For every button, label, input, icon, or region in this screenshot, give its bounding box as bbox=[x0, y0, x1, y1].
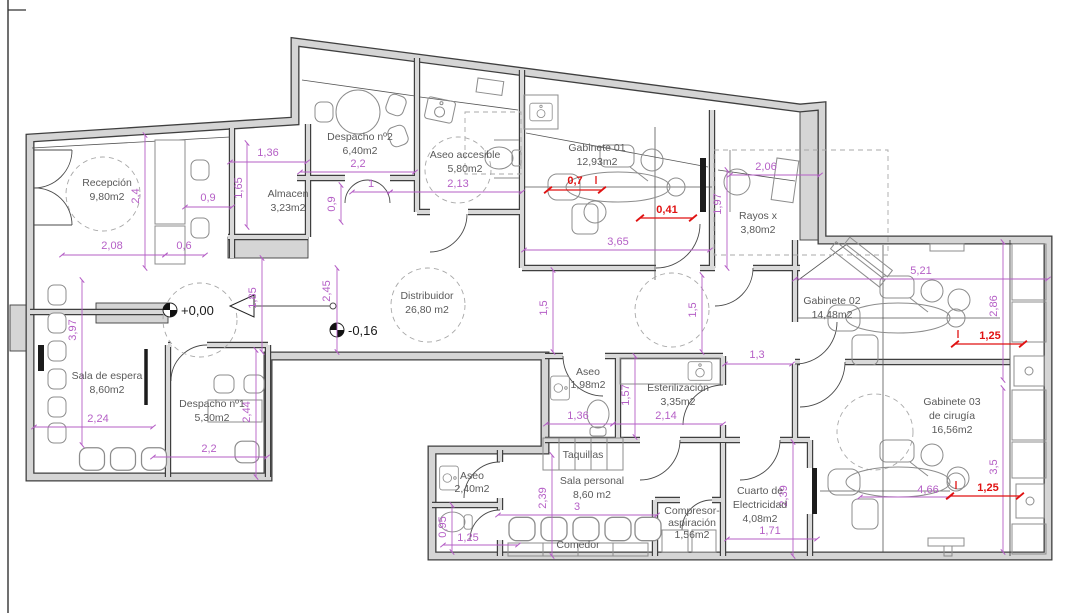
room-label-gabinete02: Gabinete 02 bbox=[803, 295, 860, 307]
dim-label: 2,86 bbox=[988, 295, 1000, 316]
reception-desk bbox=[155, 140, 185, 224]
dim-label: 0,6 bbox=[176, 240, 191, 252]
room-label-esterilizacion: Esterilización bbox=[647, 382, 709, 394]
level-label: -0,16 bbox=[348, 323, 378, 338]
dim-label: 1,25 bbox=[457, 532, 478, 544]
dim-label: 1,71 bbox=[759, 525, 780, 537]
room-label-almacen: Almacen bbox=[268, 188, 309, 200]
floor-plan-sheet: +0,00 -0,16 bbox=[0, 0, 1084, 613]
dim-label: 1,85 bbox=[247, 287, 259, 308]
room-label-gabinete03: Gabinete 03 bbox=[923, 396, 980, 408]
room-label-electricidad: Cuarto de bbox=[737, 485, 783, 497]
room-label-despacho1: Despacho nº1 bbox=[179, 398, 245, 410]
room-area: 8,60 m2 bbox=[573, 489, 611, 501]
room-label-compresor-line2: aspiración bbox=[668, 517, 716, 529]
room-label-comedor: Comedor bbox=[556, 539, 600, 551]
room-area: 8,60m2 bbox=[89, 384, 124, 396]
room-area: 4,08m2 bbox=[742, 513, 777, 525]
round-table bbox=[336, 90, 380, 134]
dim-label: 1,5 bbox=[687, 302, 699, 317]
dim-label: 1,36 bbox=[257, 147, 278, 159]
room-area: 5,30m2 bbox=[194, 412, 229, 424]
room-area: 16,56m2 bbox=[932, 424, 973, 436]
walls bbox=[30, 42, 1048, 556]
room-area: 1,98m2 bbox=[570, 379, 605, 391]
room-area: 26,80 m2 bbox=[405, 304, 449, 316]
dim-label: 0,9 bbox=[326, 196, 338, 211]
floor-plan-drawing: +0,00 -0,16 bbox=[0, 0, 1084, 613]
room-area: 14,48m2 bbox=[812, 309, 853, 321]
dim-label: 2,2 bbox=[201, 443, 216, 455]
chair bbox=[235, 441, 259, 463]
room-area: 5,80m2 bbox=[447, 163, 482, 175]
dim-label: 1,5 bbox=[538, 300, 550, 315]
room-label-sala-espera: Sala de espera bbox=[72, 370, 143, 382]
room-label-sala-personal: Sala personal bbox=[560, 475, 624, 487]
chair bbox=[191, 160, 209, 180]
dim-label: 3,97 bbox=[67, 319, 79, 340]
dim-label: 4,66 bbox=[917, 484, 938, 496]
room-label-compresor: Compresor- bbox=[664, 505, 720, 517]
room-area: 3,23m2 bbox=[270, 202, 305, 214]
dim-label: 2,06 bbox=[755, 161, 776, 173]
dim-label: 1,3 bbox=[749, 349, 764, 361]
dim-label: 2,08 bbox=[101, 240, 122, 252]
dim-label-critical: 0,7 bbox=[567, 175, 582, 187]
cabinet bbox=[524, 95, 558, 129]
dim-label: 3,5 bbox=[988, 459, 1000, 474]
dim-label: 2,45 bbox=[321, 280, 333, 301]
dim-label-critical: 1,25 bbox=[979, 330, 1000, 342]
dim-label: 2,24 bbox=[87, 413, 108, 425]
room-label-aseo-staff: Aseo bbox=[460, 470, 484, 482]
room-label-taquillas: Taquillas bbox=[563, 449, 604, 461]
dim-label: 2,2 bbox=[350, 158, 365, 170]
sliding-door bbox=[812, 468, 817, 514]
room-label-aseo-accesible: Aseo accesible bbox=[430, 149, 501, 161]
dental-chair bbox=[828, 440, 965, 529]
room-label-distribuidor: Distribuidor bbox=[400, 290, 454, 302]
dim-label: 1,97 bbox=[712, 193, 724, 214]
room-area: 3,80m2 bbox=[740, 224, 775, 236]
room-label-gabinete03-line2: de cirugía bbox=[929, 410, 975, 422]
cabinets bbox=[1012, 244, 1046, 554]
room-area: 2,40m2 bbox=[454, 483, 489, 495]
room-area: 12,93m2 bbox=[577, 156, 618, 168]
room-area: 1,56m2 bbox=[674, 529, 709, 541]
chair bbox=[315, 102, 333, 122]
room-label-recepcion: Recepción bbox=[82, 177, 132, 189]
dim-label: 1,57 bbox=[620, 384, 632, 405]
stool bbox=[947, 467, 969, 489]
dim-label-critical: 1,25 bbox=[977, 482, 998, 494]
dim-label: 3 bbox=[574, 501, 580, 513]
dim-label: 2,39 bbox=[537, 487, 549, 508]
dim-label: 1,65 bbox=[233, 177, 245, 198]
room-label-despacho2: Despacho nº2 bbox=[327, 131, 393, 143]
stool bbox=[948, 289, 970, 311]
level-label: +0,00 bbox=[181, 303, 214, 318]
room-label-electricidad-line2: Electricidad bbox=[733, 499, 787, 511]
room-label-gabinete01: Gabinete 01 bbox=[568, 142, 625, 154]
chair bbox=[214, 375, 234, 393]
room-label-aseo: Aseo bbox=[576, 366, 600, 378]
dim-label-critical: 0,41 bbox=[656, 204, 677, 216]
sink bbox=[530, 103, 552, 121]
dim-label: 1,36 bbox=[567, 410, 588, 422]
room-area: 9,80m2 bbox=[89, 191, 124, 203]
room-area: 6,40m2 bbox=[342, 145, 377, 157]
dim-label: 2,14 bbox=[655, 410, 676, 422]
chair bbox=[244, 375, 264, 393]
dim-label: 0,95 bbox=[437, 516, 449, 537]
dim-label: 2,4 bbox=[130, 188, 142, 203]
room-area: 3,35m2 bbox=[660, 396, 695, 408]
sink bbox=[688, 362, 712, 381]
chair bbox=[191, 218, 209, 238]
sink bbox=[551, 376, 570, 400]
room-label-rayosx: Rayos x bbox=[739, 210, 778, 222]
chair bbox=[384, 93, 408, 118]
level-symbol bbox=[163, 303, 177, 317]
dim-label: 3,65 bbox=[607, 236, 628, 248]
dim-label: 5,21 bbox=[910, 265, 931, 277]
dim-label: 0,9 bbox=[200, 192, 215, 204]
level-markers: +0,00 -0,16 bbox=[163, 303, 378, 338]
sink bbox=[424, 96, 456, 123]
sliding-door bbox=[700, 158, 706, 212]
dim-label: 2,13 bbox=[447, 178, 468, 190]
dim-label: 1 bbox=[368, 178, 374, 190]
toilet bbox=[587, 400, 609, 436]
